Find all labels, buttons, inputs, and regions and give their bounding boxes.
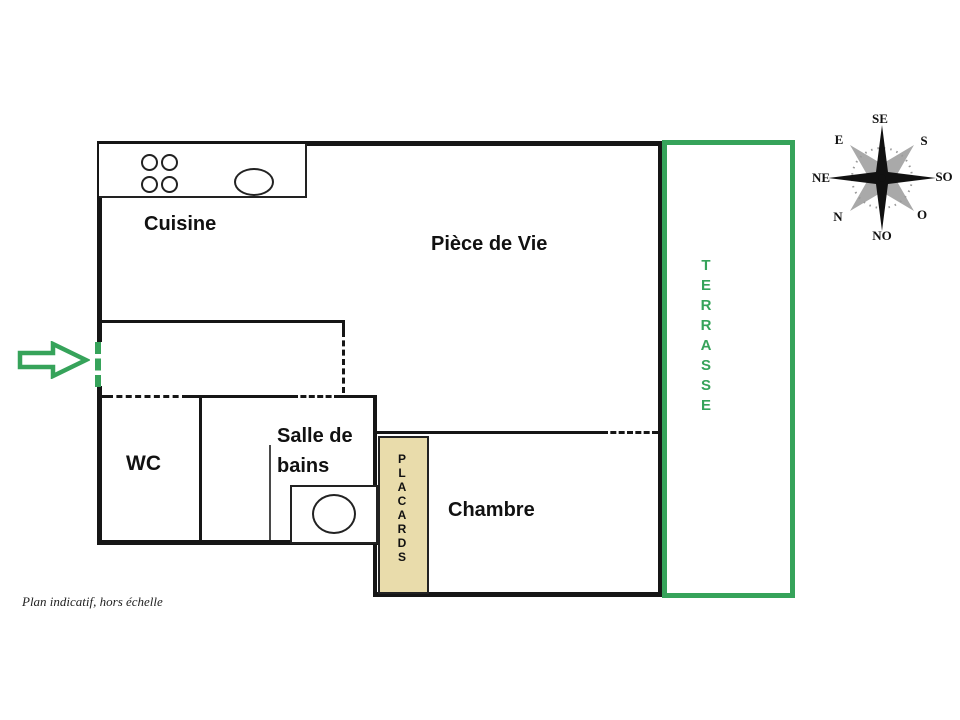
compass-label-ne: NE bbox=[812, 170, 830, 186]
hall-bottom-dashed1 bbox=[107, 395, 188, 398]
compass-label-o: O bbox=[917, 207, 927, 223]
terrace-letter: A bbox=[701, 336, 712, 356]
placards-letter: R bbox=[398, 522, 407, 536]
bath-top-wall bbox=[340, 395, 377, 398]
hall-bottom-seg1 bbox=[97, 395, 107, 398]
hall-bottom-dashed2 bbox=[292, 395, 340, 398]
label-chambre: Chambre bbox=[448, 499, 535, 522]
entrance-arrow-icon bbox=[16, 341, 90, 379]
compass-label-e: E bbox=[835, 132, 844, 148]
terrace-letter: E bbox=[701, 396, 711, 416]
terrace-letter: E bbox=[701, 276, 711, 296]
bath-inner-divider bbox=[269, 445, 271, 540]
kitchen-sink-icon bbox=[234, 168, 274, 196]
label-wc: WC bbox=[126, 452, 161, 476]
compass-rose: SE S SO O NO N NE E bbox=[810, 105, 955, 250]
label-salle-de-bains-line2: bains bbox=[277, 451, 353, 481]
placards-letter: A bbox=[398, 508, 407, 522]
placards-letter: P bbox=[398, 452, 406, 466]
hall-divider-dashed bbox=[342, 331, 345, 393]
wc-bath-partition bbox=[199, 397, 202, 540]
label-salle-de-bains: Salle de bains bbox=[277, 421, 353, 481]
placards-letter: L bbox=[398, 466, 405, 480]
terrace-letter: R bbox=[701, 316, 712, 336]
hall-top-partition bbox=[99, 320, 345, 323]
bedroom-top-wall bbox=[377, 431, 602, 434]
terrace-door-dashed bbox=[602, 431, 658, 434]
terrace-letter: T bbox=[701, 256, 710, 276]
stove-burner-icon bbox=[141, 154, 158, 171]
terrace-letter: S bbox=[701, 356, 711, 376]
placards-letter: A bbox=[398, 480, 407, 494]
compass-label-se: SE bbox=[872, 111, 888, 127]
label-piece-de-vie: Pièce de Vie bbox=[431, 233, 547, 256]
placards-letter: C bbox=[398, 494, 407, 508]
hall-divider-tick bbox=[342, 320, 345, 331]
floor-plan: P L A C A R D S T E R R A S S E Cuisine … bbox=[0, 0, 960, 720]
placards-letter: S bbox=[398, 550, 406, 564]
label-salle-de-bains-line1: Salle de bbox=[277, 421, 353, 451]
compass-label-n: N bbox=[833, 209, 842, 225]
wall-left-lower bbox=[97, 386, 102, 545]
entrance-door-dashed bbox=[95, 342, 101, 387]
terrace-label: T E R R A S S E bbox=[693, 256, 719, 416]
terrace-letter: S bbox=[701, 376, 711, 396]
stove-burner-icon bbox=[141, 176, 158, 193]
kitchen-counter bbox=[99, 144, 307, 198]
label-cuisine: Cuisine bbox=[144, 213, 216, 236]
placards-label: P L A C A R D S bbox=[389, 452, 415, 564]
stove-burner-icon bbox=[161, 176, 178, 193]
compass-label-s: S bbox=[920, 133, 927, 149]
stove-burner-icon bbox=[161, 154, 178, 171]
compass-label-so: SO bbox=[935, 169, 952, 185]
plan-footnote: Plan indicatif, hors échelle bbox=[22, 594, 163, 610]
hall-bottom-seg2 bbox=[188, 395, 292, 398]
bath-sink-icon bbox=[312, 494, 356, 534]
compass-label-no: NO bbox=[872, 228, 892, 244]
placards-letter: D bbox=[398, 536, 407, 550]
terrace-letter: R bbox=[701, 296, 712, 316]
terrace-outline bbox=[662, 140, 795, 598]
